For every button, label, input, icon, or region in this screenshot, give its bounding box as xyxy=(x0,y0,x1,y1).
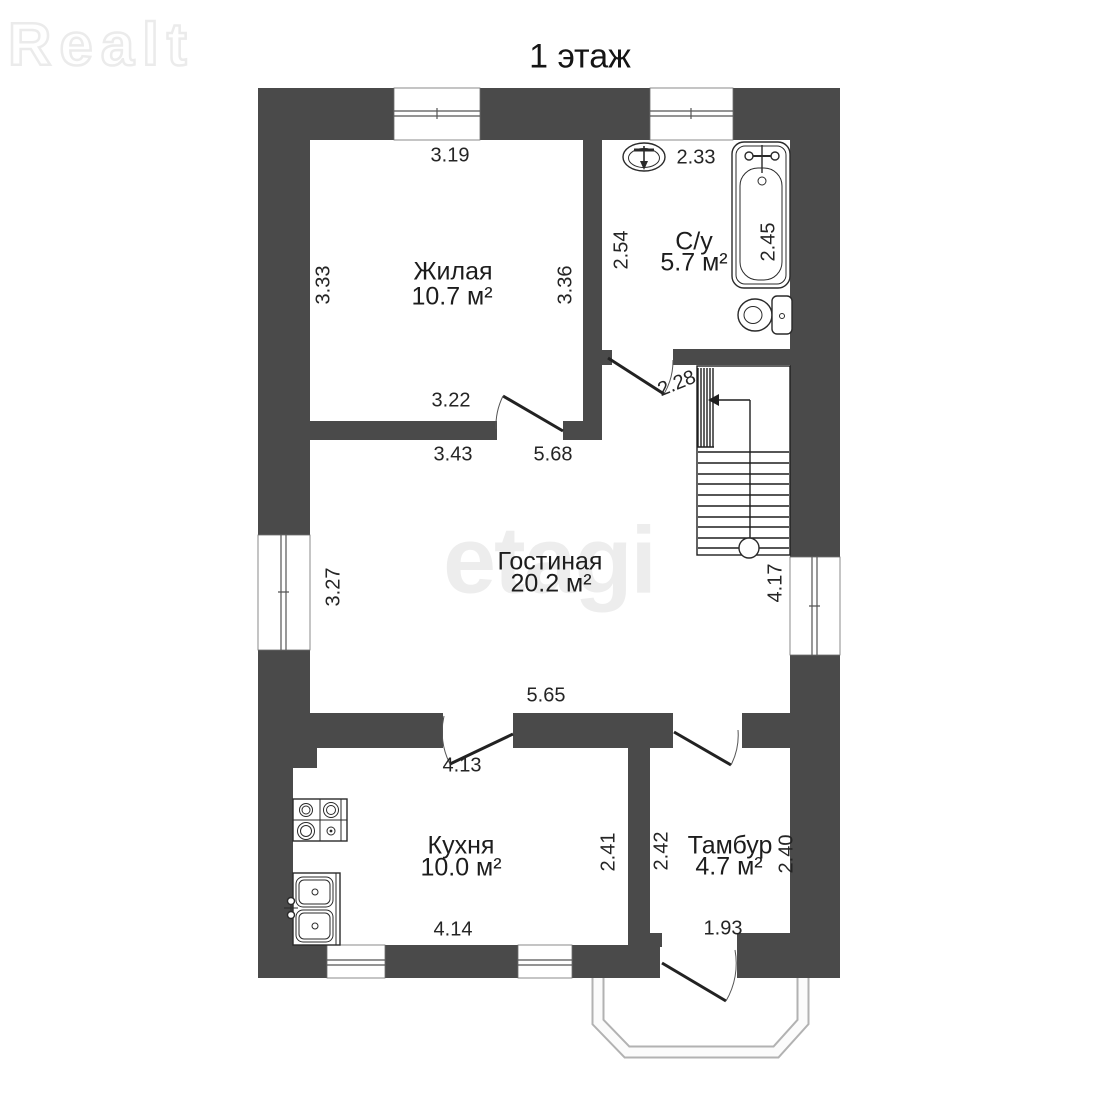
dim-kitchen-right: 2.41 xyxy=(598,833,621,872)
dim-bath: 2.45 xyxy=(758,223,781,262)
window-bottom-left xyxy=(327,945,385,978)
dim-kitchen-bottom: 4.14 xyxy=(434,919,473,942)
toilet-icon xyxy=(738,296,792,334)
dim-gost-seg2: 5.68 xyxy=(534,444,573,467)
dim-tambur-bottom: 1.93 xyxy=(704,918,743,941)
dim-su-top: 2.33 xyxy=(677,147,716,170)
doors xyxy=(442,358,738,1001)
bathroom-sink-icon xyxy=(623,143,665,171)
stairs-newel-post xyxy=(739,538,759,558)
dim-su-left: 2.54 xyxy=(611,231,634,270)
dim-zhilaya-right: 3.36 xyxy=(555,266,578,305)
stairs xyxy=(697,366,790,558)
porch-outline xyxy=(598,978,803,1052)
door-tambur xyxy=(674,730,738,765)
dim-zhilaya-left: 3.33 xyxy=(313,266,336,305)
window-top-right xyxy=(650,88,733,140)
dim-gost-bottom: 5.65 xyxy=(527,685,566,708)
floor-title: 1 этаж xyxy=(529,38,631,77)
window-top-left xyxy=(394,88,480,140)
room-area-zhilaya: 10.7 м² xyxy=(411,283,492,312)
dim-tambur-left: 2.42 xyxy=(651,832,674,871)
stove-icon xyxy=(293,799,347,841)
room-area-kuhnya: 10.0 м² xyxy=(420,854,501,883)
dim-tambur-right: 2.40 xyxy=(776,835,799,874)
dim-zhilaya-top: 3.19 xyxy=(431,145,470,168)
dim-gost-left: 3.27 xyxy=(323,568,346,607)
door-zhilaya xyxy=(496,396,563,431)
room-area-tambur: 4.7 м² xyxy=(695,853,762,882)
floor-plan-page: Realt etagi xyxy=(0,0,1100,1100)
bathtub-icon xyxy=(732,142,790,288)
door-entrance xyxy=(662,950,736,1001)
dim-gost-seg1: 3.43 xyxy=(434,444,473,467)
dim-zhilaya-bottom: 3.22 xyxy=(432,390,471,413)
window-bottom-right xyxy=(518,945,572,978)
kitchen-sink-icon xyxy=(284,873,340,945)
room-area-su: 5.7 м² xyxy=(660,249,727,278)
room-area-gostinaya: 20.2 м² xyxy=(510,570,591,599)
dim-stairs-right: 4.17 xyxy=(765,564,788,603)
window-right xyxy=(790,557,840,655)
window-left xyxy=(258,535,310,650)
dim-kitchen-top: 4.13 xyxy=(443,755,482,778)
